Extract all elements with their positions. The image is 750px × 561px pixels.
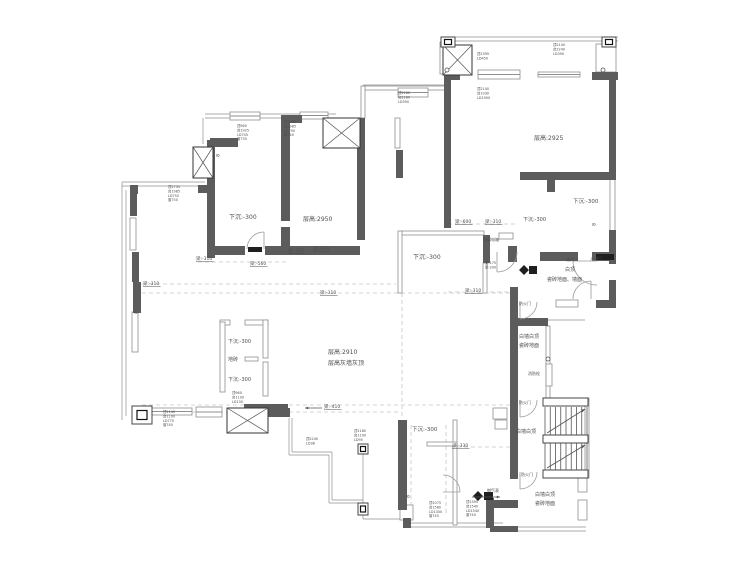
window-note: 窗745 [429,513,439,518]
wall [492,500,518,508]
window-note: 台1100 [163,413,175,418]
beam-600: 梁:-600 [455,218,471,225]
hinge-mark-3: 8 [404,495,410,498]
wall [444,78,451,228]
lobby-label-1a: 白墙白顶 [519,333,539,340]
door-swings [247,232,597,492]
entry-label-tile: 瓷砖地面、墙面 [547,276,582,283]
window-note: 台1540 [466,503,478,508]
window-note: 顶1735 [168,185,180,189]
door-leaf [248,247,262,252]
window-note: 窗750 [168,197,178,202]
window-note: LD1900 [477,96,490,100]
partition [546,326,550,398]
hinge-mark-4: 8 [132,311,138,314]
partition [596,44,616,72]
beam-330: 梁:-330 [452,442,468,449]
lobby-label-1b: 瓷砖地面 [519,342,539,349]
wall [609,280,616,308]
closet-label-floortile: 地砖 [228,356,238,363]
beam-290: 梁:-290 [313,245,329,252]
fire-hydrant-label: 消防栓 [528,370,540,376]
window-note: LD745 [237,133,248,137]
thin-walls [130,42,616,525]
hinge-dot [445,68,449,72]
window-note: 顶960 [237,124,247,128]
beam-310-b: 梁:-310 [485,218,501,225]
door-arc [247,232,264,249]
room-label-height-2950: 层高:2950 [303,215,332,223]
lobby-label-3a: 白墙白顶 [535,491,555,498]
window-note: 台1930 [477,90,489,95]
partition [499,233,513,239]
fire-door-label-2: 防火门 [519,399,531,405]
wall [403,518,411,528]
staircase [543,398,588,478]
partition [556,300,578,307]
wall [490,526,518,532]
hinge-dot [601,68,605,72]
lobby-label-3b: 瓷砖地面 [535,500,555,507]
window-note: 台1925 [237,127,249,132]
window-note: 顶2280 [398,91,410,95]
partition [130,218,136,250]
entry-symbol [519,265,529,275]
fire-door-label-1: 防火门 [519,300,531,306]
beam-250: 梁:-250 [288,247,304,254]
partition [132,312,138,352]
room-label-sunken-5: 下沉:-300 [412,425,438,433]
door-leaf [484,492,493,500]
partition [400,231,484,235]
room-label-height-2925: 层高:2925 [534,134,563,142]
beam-560: 梁:-560 [250,260,266,267]
entry-door-label: 入户门 [590,255,602,261]
window-note: LD95 [354,438,363,442]
beam-410: 梁:-410 [324,403,340,410]
window-note: 顶2276 [284,120,296,124]
window-note: LD1300 [429,510,442,514]
window-note: 台2180 [398,94,410,99]
window-note: LD770 [163,419,174,423]
stair-landing [543,470,588,478]
window-note: 窗740 [466,512,476,517]
room-label-sunken-4: 下沉:-300 [413,253,441,261]
window-note: 顶1395 [477,52,489,56]
window-note: 顶1395 [466,500,478,504]
wall [396,150,403,178]
partition [361,86,365,118]
wall [210,138,238,147]
partition [493,408,507,419]
window-note: 顶2240 [306,437,318,441]
partition [453,420,457,525]
gas-meter-label: 燃气表 [487,487,499,493]
room-label-sunken-2: 下沉:-300 [573,197,599,205]
closet-label-sunken-b: 下沉:-300 [228,376,251,383]
wall [547,178,555,192]
floor-plan: 下沉:-300层高:2950层高:2925下沉:-300下沉:-300下沉:-3… [0,0,750,561]
room-label-grey-wall: 层高灰墙灰顶 [328,359,364,367]
partition [398,231,402,293]
wall [133,282,141,313]
window-note: LD38 [306,441,315,445]
stair-landing [543,398,588,406]
partition [245,357,258,361]
window-note: LD750 [168,194,179,198]
wall [520,172,616,180]
vent-label: 通风口 [566,256,578,262]
partition [495,420,507,429]
window-note: LD790 [284,129,295,133]
door-arc [443,475,460,492]
entry-label-ceiling: 白顶 [565,266,575,273]
window-note: 台1985 [284,123,296,128]
window-note: 台1100 [354,432,366,437]
partition [546,364,552,386]
wall [198,185,207,193]
wall [265,246,282,255]
partition [263,320,268,358]
window-note: LD1540 [466,509,479,513]
beam-310-a: 梁:-310 [196,255,212,262]
wall [510,287,518,479]
window-note: 顶960 [232,391,242,395]
room-label-sunken-3: 下沉:-300 [523,216,546,223]
window-note: 顶1075 [429,501,441,505]
hinge-dot [546,357,550,361]
window-note: 顶2140 [477,87,489,91]
window-note: LD390 [553,52,564,56]
window-note: 窗735 [237,136,247,141]
wall [213,246,245,255]
beam-310-c: 梁:-310 [143,280,159,287]
room-label-sunken-1: 下沉:-300 [229,213,257,221]
lobby-label-2: 白墙白顶 [516,428,536,435]
beam-note: 梁-175 [485,260,496,265]
partition [263,362,268,396]
window-note: 窗740 [163,422,173,427]
fire-door-label-3: 防火门 [521,471,533,477]
hinge-mark-2: 8 [590,223,596,226]
window-note: 顶2140 [553,43,565,47]
hinge-mark-1: 8 [214,154,220,157]
floor-plan-drawing: 下沉:-300层高:2950层高:2925下沉:-300下沉:-300下沉:-3… [0,0,750,561]
elec-box-label: 强弱电箱 [483,236,499,242]
wall [609,74,616,178]
partition [578,478,587,492]
window-note: 台1580 [429,504,441,509]
window-note: 台1100 [232,394,244,399]
stair-landing [543,435,588,443]
beam-310-d: 梁:-310 [320,289,336,296]
window-note: LD450 [477,56,488,60]
partition [578,500,587,520]
beam-note: 梁-200 [485,264,496,269]
window-note: 窗740 [284,132,294,137]
door-leaf [529,266,537,274]
window-note: 台2240 [553,46,565,51]
window-note: LD130 [232,400,243,404]
partition [220,322,225,392]
partition [395,118,400,148]
beam-310-e: 梁:-310 [465,287,481,294]
wall [130,192,137,216]
wall [132,252,139,282]
window-note: 台1985 [168,188,180,193]
window-note: LD390 [398,100,409,104]
window-note: 顶1140 [163,410,175,414]
room-label-height-2910: 层高:2910 [328,348,357,356]
window-note: 顶1180 [354,429,366,433]
closet-label-sunken-a: 下沉:-300 [228,338,251,345]
